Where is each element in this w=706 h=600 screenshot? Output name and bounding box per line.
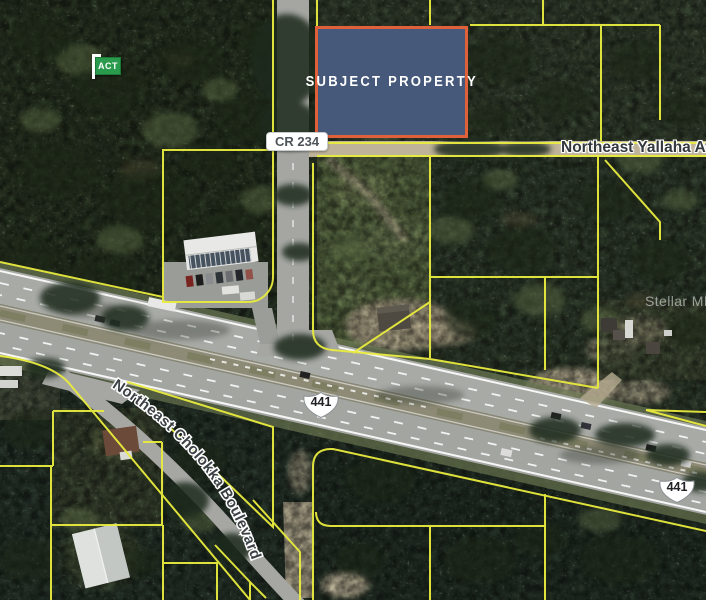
marker-flag: ACT <box>95 57 121 75</box>
stellar-mls-watermark: Stellar MLS <box>645 293 706 309</box>
route-441-shield-west: 441 <box>301 391 341 419</box>
route-441-shield-east: 441 <box>657 476 697 504</box>
active-listing-marker: ACT <box>92 53 124 81</box>
marker-status-text: ACT <box>98 61 118 71</box>
cholokka-street-text: Northeast Cholokka Boulevard <box>110 376 265 562</box>
route-441-number: 441 <box>657 480 697 494</box>
aerial-parcel-map: Northeast Cholokka Boulevard SUBJECT PRO… <box>0 0 706 600</box>
yallaha-street-label: Northeast Yallaha Avenue <box>561 139 706 157</box>
cr234-road-badge: CR 234 <box>266 132 328 151</box>
subject-property-highlight: SUBJECT PROPERTY <box>315 26 468 138</box>
route-441-number: 441 <box>301 395 341 409</box>
subject-property-label: SUBJECT PROPERTY <box>305 74 477 90</box>
svg-text:Northeast Cholokka Boulevard: Northeast Cholokka Boulevard <box>110 376 265 562</box>
